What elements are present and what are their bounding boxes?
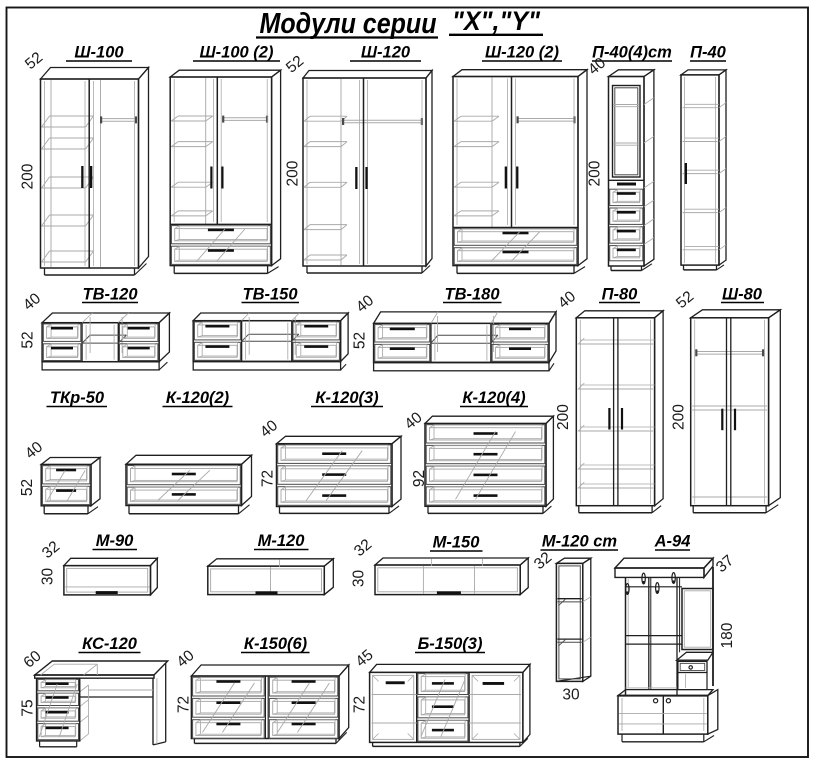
svg-text:30: 30: [351, 570, 368, 588]
svg-text:Ш-100: Ш-100: [74, 44, 124, 62]
svg-text:М-120: М-120: [258, 532, 306, 550]
svg-text:30: 30: [562, 687, 580, 704]
svg-text:А-94: А-94: [654, 533, 691, 551]
svg-text:М-90: М-90: [96, 532, 134, 550]
svg-text:ТВ-180: ТВ-180: [444, 286, 500, 304]
svg-text:М-150: М-150: [433, 534, 481, 552]
svg-text:Ш-100 (2): Ш-100 (2): [200, 44, 274, 62]
svg-text:200: 200: [671, 404, 688, 430]
svg-text:75: 75: [20, 699, 37, 716]
svg-text:К-120(2): К-120(2): [166, 389, 230, 407]
svg-text:П-80: П-80: [602, 286, 639, 304]
svg-text:72: 72: [176, 696, 193, 713]
svg-text:52: 52: [19, 479, 36, 496]
svg-text:Б-150(3): Б-150(3): [418, 635, 483, 653]
svg-text:К-120(4): К-120(4): [462, 389, 526, 407]
svg-text:200: 200: [555, 404, 572, 430]
svg-text:200: 200: [285, 160, 302, 186]
svg-text:"X","Y": "X","Y": [452, 6, 540, 36]
svg-text:Ш-80: Ш-80: [722, 286, 763, 304]
svg-text:72: 72: [260, 470, 277, 487]
svg-text:200: 200: [587, 160, 604, 186]
svg-text:72: 72: [352, 696, 369, 713]
svg-text:Модули серии: Модули серии: [260, 8, 437, 40]
svg-text:К-120(3): К-120(3): [315, 389, 379, 407]
svg-text:П-40: П-40: [690, 44, 727, 62]
svg-text:Ш-120: Ш-120: [361, 44, 411, 62]
svg-text:52: 52: [352, 332, 369, 349]
svg-text:200: 200: [20, 163, 37, 189]
svg-text:П-40(4)ст: П-40(4)ст: [592, 44, 672, 62]
svg-text:30: 30: [40, 568, 57, 586]
svg-text:ТКр-50: ТКр-50: [50, 389, 105, 407]
svg-text:ТВ-150: ТВ-150: [242, 286, 298, 304]
svg-text:М-120 ст: М-120 ст: [542, 533, 617, 551]
svg-text:КС-120: КС-120: [82, 635, 138, 653]
svg-text:52: 52: [20, 331, 37, 348]
svg-text:Ш-120 (2): Ш-120 (2): [485, 44, 559, 62]
svg-text:180: 180: [719, 622, 736, 648]
svg-text:ТВ-120: ТВ-120: [82, 286, 138, 304]
svg-text:К-150(6): К-150(6): [244, 635, 308, 653]
